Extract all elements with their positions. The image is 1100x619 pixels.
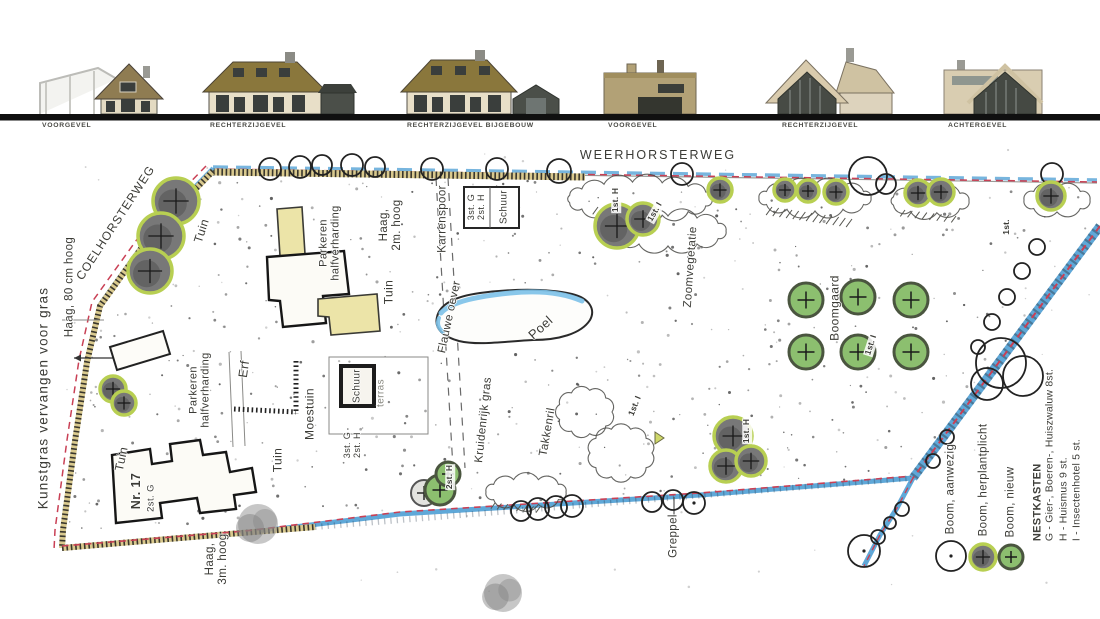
tree-existing-icon [936,541,966,571]
legend-nestkasten-i: I - Insectenhotel 5 st. [1071,369,1085,541]
tree-new-icon [436,462,460,486]
tree-new-icon [841,280,875,314]
tree-new-icon [894,335,928,369]
stipple-dots [63,149,1090,592]
tree-existing-blob [236,504,278,544]
tree-herplantplicht-icon [797,180,819,202]
shrub-outline [588,424,654,482]
tree-existing-icon [999,289,1015,305]
tree-herplantplicht-icon [774,179,796,201]
tree-existing-icon [1029,239,1045,255]
tree-new-icon [841,335,875,369]
shrub-outline [555,386,613,437]
site-plan-drawing [0,0,1100,619]
terrace-south [318,294,380,335]
tree-new-icon [999,545,1023,569]
hatch-ticks [766,207,852,227]
landscape-site-plan: VOORGEVEL RECHTERZIJGEVEL RECHTERZIJGEVE… [0,0,1100,619]
legend-nestkasten: NESTKASTEN G - Gier-, Boeren-, Huiszwalu… [1032,369,1085,541]
terrace-north [277,207,305,256]
tree-new-icon [789,283,823,317]
elevation-label-6: ACHTERGEVEL [948,122,1007,129]
tree-herplantplicht-icon [824,180,848,204]
tree-new-icon [894,283,928,317]
building-house-nr17 [112,440,256,523]
legend-nestkasten-title: NESTKASTEN [1032,369,1044,541]
tree-herplantplicht-icon [1037,182,1065,210]
elevation-label-3: RECHTERZIJGEVEL BIJGEBOUW [407,122,534,129]
hatch-ticks [900,210,956,222]
tree-new-icon [789,335,823,369]
tree-existing-icon [642,492,662,512]
tree-herplantplicht-icon [928,179,954,205]
building-outbuilding [110,331,170,370]
tree-herplantplicht-icon [627,203,659,235]
tree-herplantplicht-icon [970,544,996,570]
building-schuur-north [464,187,519,228]
elevation-label-4: VOORGEVEL [608,122,657,129]
tree-herplantplicht-icon [708,178,732,202]
tree-herplantplicht-icon [128,249,172,293]
tree-existing-icon [984,314,1000,330]
legend-nestkasten-g: G - Gier-, Boeren-, Huiszwaluw 8st. [1044,369,1058,541]
tree-herplantplicht-icon [112,391,136,415]
tree-existing-icon [1014,263,1030,279]
tree-herplantplicht-icon [736,446,766,476]
elevation-label-2: RECHTERZIJGEVEL [210,122,286,129]
legend-nestkasten-h: H - Huismus 9 st. [1057,369,1071,541]
tree-existing-blob [482,574,522,612]
building-schuur-south [341,366,374,406]
elevation-label-1: VOORGEVEL [42,122,91,129]
elevation-label-5: RECHTERZIJGEVEL [782,122,858,129]
